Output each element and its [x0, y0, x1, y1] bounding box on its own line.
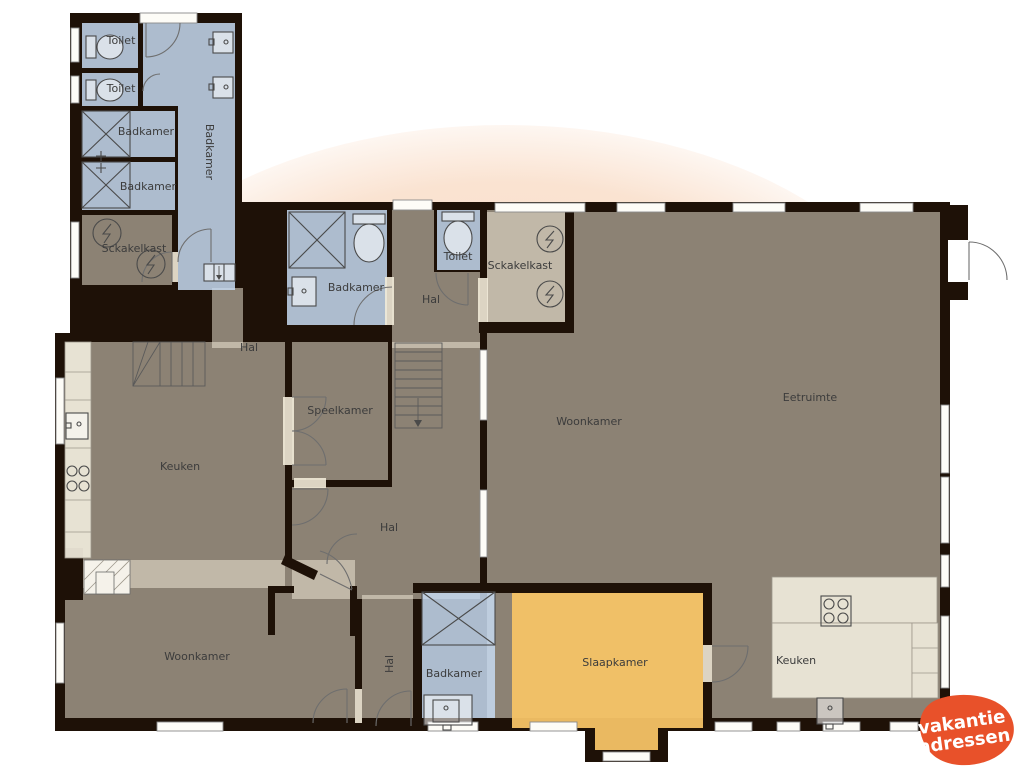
wall — [495, 583, 712, 593]
label-badkamer-wing-a: Badkamer — [118, 125, 175, 138]
label-hal-center: Hal — [380, 521, 398, 534]
label-speelkamer: Speelkamer — [307, 404, 373, 417]
window — [860, 203, 913, 212]
window — [530, 722, 577, 731]
label-badkamer-wing-b: Badkamer — [120, 180, 177, 193]
logo: vakantie adressen — [914, 695, 1013, 765]
window — [140, 13, 197, 23]
stairs-down-icon — [204, 264, 235, 281]
sink-icon — [817, 698, 843, 729]
window — [71, 28, 79, 62]
window — [777, 722, 800, 731]
sink-icon — [288, 277, 316, 306]
door-gap — [172, 252, 178, 282]
window — [941, 616, 949, 688]
window — [56, 623, 64, 683]
label-toilet-wing-2: Toilet — [106, 82, 136, 95]
door-gap — [385, 277, 394, 325]
label-slaapkamer: Slaapkamer — [582, 656, 648, 669]
toilet-icon — [353, 214, 385, 262]
window — [715, 722, 752, 731]
sink-icon — [209, 77, 233, 98]
label-toilet-top: Toilet — [443, 250, 473, 263]
fireplace — [84, 560, 130, 594]
label-woonkamer-center: Woonkamer — [556, 415, 622, 428]
sink-icon — [66, 413, 88, 439]
wall — [565, 202, 574, 324]
floor-plan-page: vakantie adressen — [0, 0, 1024, 768]
wall — [268, 586, 275, 635]
door-gap — [294, 478, 326, 488]
door-gap — [703, 645, 712, 682]
sink-icon — [209, 32, 233, 53]
window — [393, 200, 432, 210]
window — [890, 722, 918, 731]
label-toilet-wing-1: Toilet — [106, 34, 136, 47]
window — [941, 555, 949, 587]
label-badkamer-top: Badkamer — [328, 281, 385, 294]
window — [603, 752, 650, 761]
door-arc-exterior — [969, 242, 1007, 280]
wall — [350, 586, 357, 636]
label-hal-bottom: Hal — [383, 655, 396, 673]
room-hal-center — [292, 487, 480, 599]
room-hal-junction — [212, 288, 243, 348]
label-badkamer-bottom: Badkamer — [426, 667, 483, 680]
door-gap — [478, 278, 488, 322]
window — [941, 477, 949, 543]
window — [617, 203, 665, 212]
window-interior — [480, 490, 487, 557]
door-gap — [355, 689, 362, 723]
label-keuken-left: Keuken — [160, 460, 200, 473]
label-keuken-right: Keuken — [776, 654, 816, 667]
label-hal-top: Hal — [422, 293, 440, 306]
label-badkamer-wing-corridor: Badkamer — [203, 124, 216, 181]
label-hal-junction: Hal — [240, 341, 258, 354]
door-gap — [948, 240, 970, 282]
window — [71, 222, 79, 278]
kitchen-counter-left — [65, 342, 91, 558]
room-stairs-area — [392, 342, 480, 487]
floor-plan-canvas: vakantie adressen — [0, 0, 1024, 768]
label-eetruimte: Eetruimte — [783, 391, 838, 404]
window — [733, 203, 785, 212]
label-schakelkast-wing: Sckakelkast — [102, 242, 167, 255]
window — [941, 405, 949, 473]
label-woonkamer-bottom: Woonkamer — [164, 650, 230, 663]
window — [56, 378, 64, 444]
sink-icon — [424, 695, 472, 730]
wall — [479, 322, 574, 333]
label-schakelkast-top: Sckakelkast — [488, 259, 553, 272]
window — [71, 76, 79, 103]
window — [495, 203, 585, 212]
window-interior — [480, 350, 487, 420]
window — [157, 722, 223, 731]
toilet-icon — [442, 212, 474, 255]
